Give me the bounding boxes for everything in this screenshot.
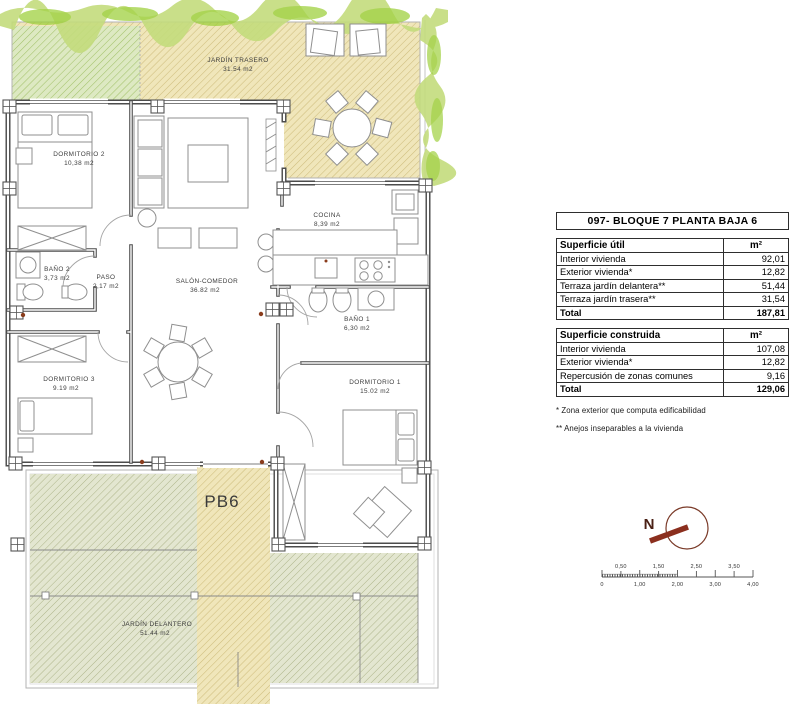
scale-tick-0-50: 0,50 [615,564,627,570]
table-row: Terraza jardín trasera** 31,54 [557,293,789,307]
scale-tick-2-00: 2,00 [672,582,684,588]
row-label: Terraza jardín trasera** [557,293,724,307]
scale-tick-2-50: 2,50 [691,564,703,570]
row-label: Exterior vivienda* [557,266,724,280]
dormitorio1-furniture [283,410,417,541]
north-arrow: N [644,507,708,549]
label-bano2: BAÑO 2 [44,264,70,273]
scale-tick-3-00: 3,00 [709,582,721,588]
scale-tick-1-00: 1,00 [634,582,646,588]
footnote-2: ** Anejos inseparables a la vivienda [556,424,789,433]
armchair [354,483,412,541]
table-row: Interior vivienda 92,01 [557,252,789,266]
row-label: Repercusión de zonas comunes [557,369,724,383]
row-value: 107,08 [724,342,789,356]
label-cocina: COCINA [313,212,341,219]
superficie-util-table: Superficie útil m² Interior vivienda 92,… [556,238,789,320]
row-label: Exterior vivienda* [557,356,724,370]
row-value: 31,54 [724,293,789,307]
label-bano1: BAÑO 1 [344,314,370,323]
bano1-fixtures [309,288,394,312]
cocina-furniture [273,190,428,285]
unit-header: m² [724,329,789,343]
info-panel: 097- BLOQUE 7 PLANTA BAJA 6 Superficie ú… [556,212,789,433]
table-row: Repercusión de zonas comunes 9,16 [557,369,789,383]
unit-header: m² [724,239,789,253]
row-label: Terraza jardín delantera** [557,279,724,293]
label-jardin-delantero-area: 51.44 m2 [140,630,170,637]
label-dormitorio1: DORMITORIO 1 [349,379,401,386]
total-value: 187,81 [724,306,789,320]
table-header-row: Superficie útil m² [557,239,789,253]
label-jardin-delantero: JARDÍN DELANTERO [122,619,192,628]
scale-tick-0: 0 [600,582,603,588]
label-dormitorio2-area: 10,38 m2 [64,160,94,167]
dining-table [144,324,212,399]
label-bano2-area: 3,73 m2 [44,275,70,282]
label-dormitorio3: DORMITORIO 3 [43,376,95,383]
unit-label-pb6: PB6 [204,492,239,511]
table-row: Terraza jardín delantera** 51,44 [557,279,789,293]
superficie-util-header: Superficie útil [557,239,724,253]
label-cocina-area: 8,39 m2 [314,221,340,228]
wardrobe [18,226,86,250]
dormitorio2-furniture [16,112,92,250]
salon-furniture [134,116,274,400]
table-total-row: Total 129,06 [557,383,789,397]
table-total-row: Total 187,81 [557,306,789,320]
label-dormitorio2: DORMITORIO 2 [53,151,105,158]
row-value: 51,44 [724,279,789,293]
total-label: Total [557,383,724,397]
dormitorio3-furniture [18,336,92,452]
row-label: Interior vivienda [557,342,724,356]
label-jardin-trasero: JARDÍN TRASERO [207,55,268,64]
superficie-construida-table: Superficie construida m² Interior vivien… [556,328,789,397]
label-jardin-trasero-area: 31.54 m2 [223,66,253,73]
label-paso-area: 2,17 m2 [93,283,119,290]
label-salon-comedor: SALÓN-COMEDOR [176,276,238,285]
label-bano1-area: 6,30 m2 [344,325,370,332]
scale-bar: 0,50 1,50 2,50 3,50 0 1,00 2,00 3,00 4,0… [600,564,759,588]
label-dormitorio3-area: 9.19 m2 [53,385,79,392]
north-label: N [644,516,655,533]
footnote-1: * Zona exterior que computa edificabilid… [556,406,789,415]
row-value: 12,82 [724,266,789,280]
plan-title: 097- BLOQUE 7 PLANTA BAJA 6 [556,212,789,230]
table-row: Interior vivienda 107,08 [557,342,789,356]
total-value: 129,06 [724,383,789,397]
floor-plan-sheet: JARDÍN TRASERO 31.54 m2 DORMITORIO 2 10,… [0,0,802,708]
row-label: Interior vivienda [557,252,724,266]
wardrobe [18,336,86,362]
total-label: Total [557,306,724,320]
scale-tick-1-50: 1,50 [653,564,665,570]
scale-tick-3-50: 3,50 [728,564,740,570]
table-header-row: Superficie construida m² [557,329,789,343]
table-row: Exterior vivienda* 12,82 [557,266,789,280]
superficie-construida-header: Superficie construida [557,329,724,343]
label-dormitorio1-area: 15.02 m2 [360,388,390,395]
table-row: Exterior vivienda* 12,82 [557,356,789,370]
scale-tick-4-00: 4,00 [747,582,759,588]
plan-title-text: 097- BLOQUE 7 PLANTA BAJA 6 [588,215,758,227]
row-value: 12,82 [724,356,789,370]
stove [355,258,395,282]
row-value: 9,16 [724,369,789,383]
wardrobe [283,464,305,540]
label-salon-comedor-area: 36.82 m2 [190,287,220,294]
label-paso: PASO [97,274,116,281]
row-value: 92,01 [724,252,789,266]
